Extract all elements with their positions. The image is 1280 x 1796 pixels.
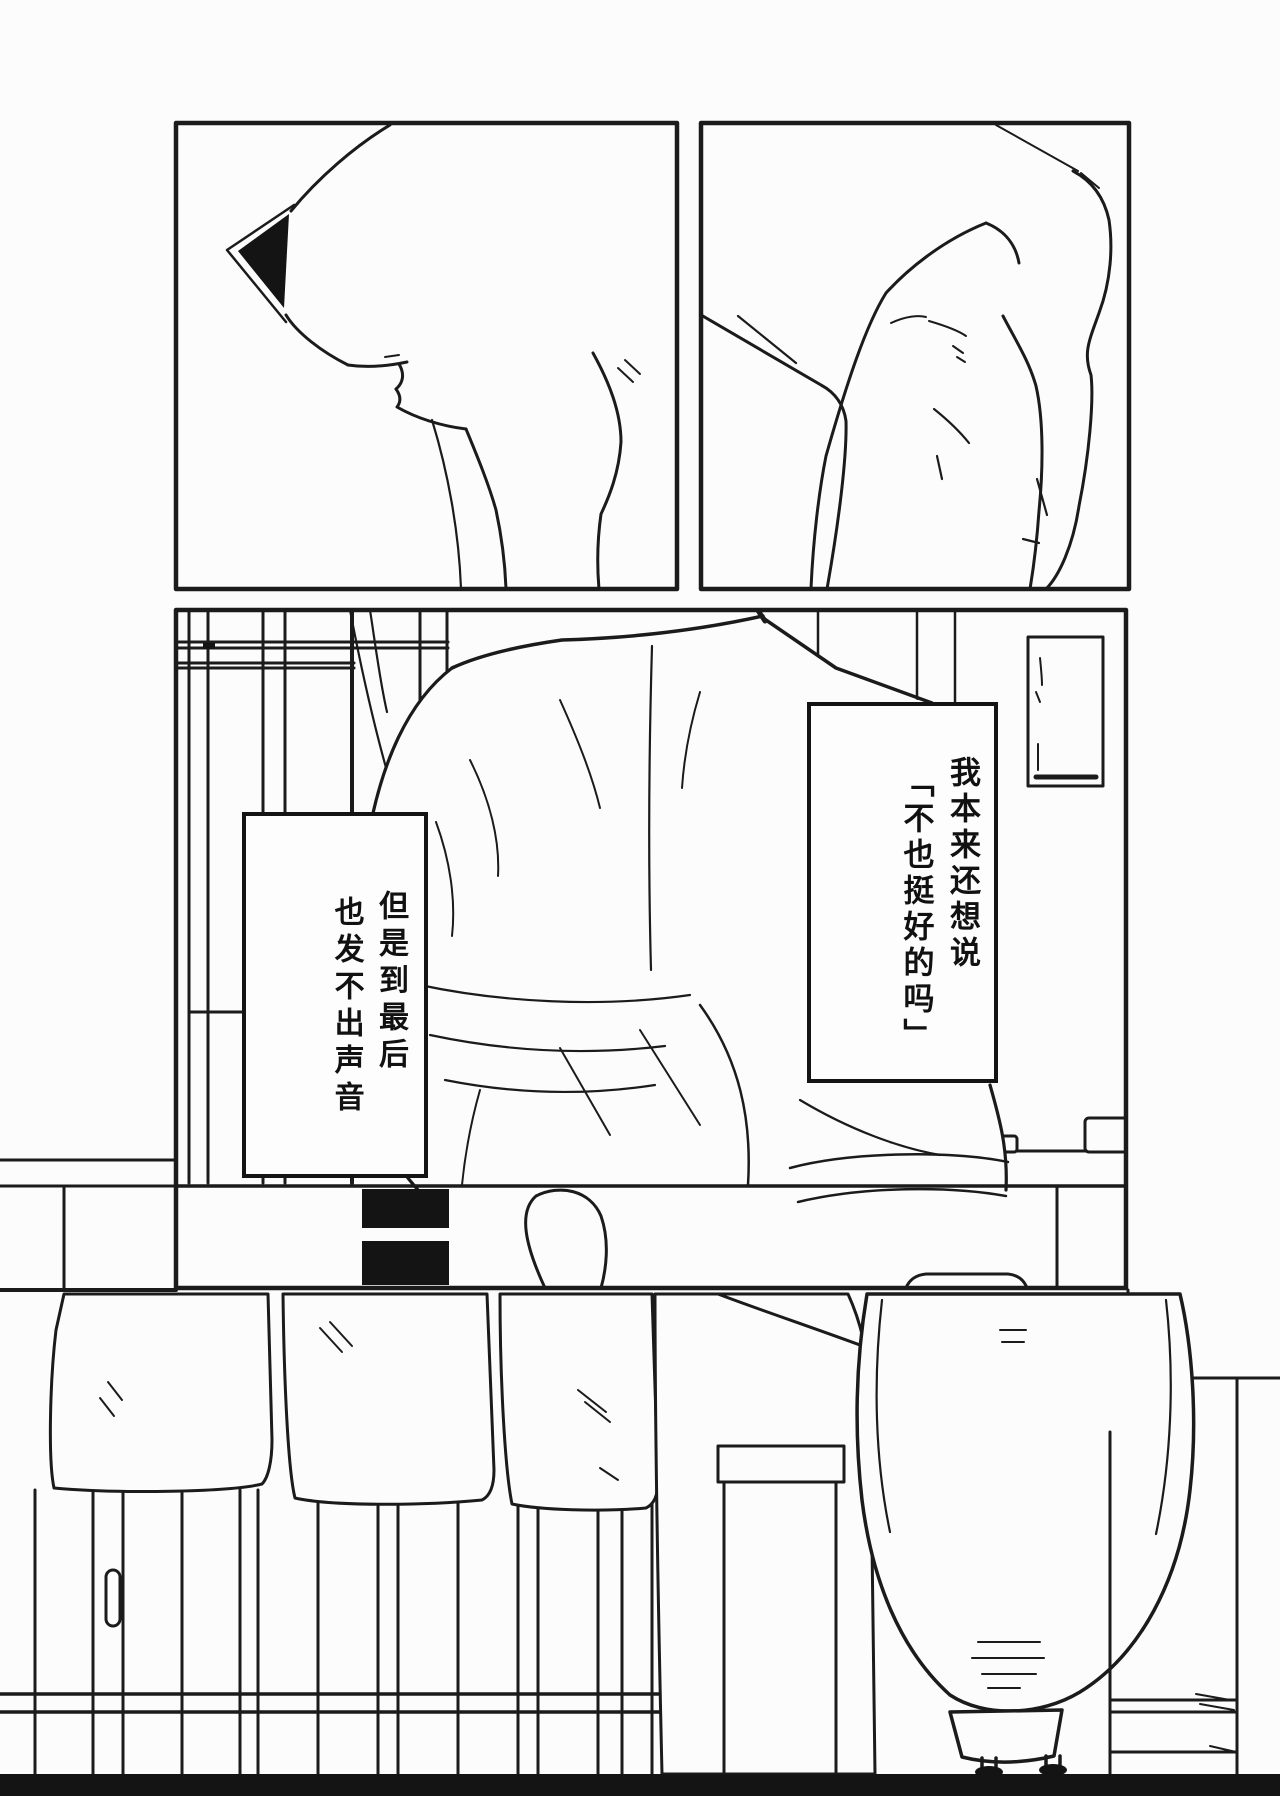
finger-edge <box>1046 171 1111 589</box>
floor-vase <box>857 1294 1194 1778</box>
speech-box-right: 我本来还想说 「不也挺好的吗」 <box>807 702 998 1083</box>
door-handle <box>106 1570 120 1626</box>
panel-hand-border <box>701 123 1129 589</box>
speech-box-left: 但是到最后 也发不出声音 <box>242 812 428 1178</box>
shoulder-line <box>593 353 621 589</box>
garment-drape <box>655 1294 875 1774</box>
stool-rail <box>718 1446 844 1482</box>
ink-stroke <box>957 357 965 362</box>
bottom-scene <box>0 1160 1280 1778</box>
cloth-middle <box>283 1294 494 1504</box>
panel-chin-border <box>176 123 677 589</box>
ink-stroke <box>385 355 399 357</box>
front-table <box>176 1186 1126 1288</box>
panel-hand-content <box>701 125 1111 589</box>
ink-stroke <box>625 360 640 374</box>
tucked-foot <box>526 1190 607 1288</box>
side-table-left-edge <box>0 1160 176 1290</box>
thumb-right-edge <box>1003 316 1042 589</box>
ink-stroke <box>937 456 942 479</box>
cloth-right <box>500 1294 658 1510</box>
ink-stroke <box>203 643 215 649</box>
ink-stroke <box>953 346 963 353</box>
ink-stroke <box>618 368 633 382</box>
thumb-tip <box>986 223 1019 263</box>
cloth-left <box>50 1294 272 1491</box>
dark-drawer <box>362 1189 449 1228</box>
jaw-line <box>291 125 390 211</box>
vase-stand-collar <box>950 1710 1062 1762</box>
chin-line <box>396 389 466 429</box>
page-artwork <box>0 0 1280 1796</box>
manga-page: 我本来还想说 「不也挺好的吗」 但是到最后 也发不出声音 <box>0 0 1280 1796</box>
neck-line <box>466 429 506 589</box>
seated-garment-and-stool <box>655 1294 875 1774</box>
ink-stroke <box>996 125 1078 171</box>
vase-body <box>857 1294 1194 1711</box>
speech-column: 我本来还想说 <box>945 756 978 1067</box>
ink-stroke <box>370 610 387 712</box>
ink-stroke <box>1200 1704 1234 1710</box>
ink-stroke <box>798 1189 1006 1202</box>
panel-chin-content <box>227 125 640 589</box>
speech-column: 「不也挺好的吗」 <box>898 766 931 1067</box>
wrist-edge <box>701 315 846 589</box>
ink-stroke <box>1081 173 1099 188</box>
mouth-corner <box>396 364 403 389</box>
cheek-line <box>286 315 348 365</box>
floor-black-band <box>0 1774 1280 1796</box>
hanging-cloths <box>50 1294 658 1510</box>
ink-stroke <box>934 409 969 443</box>
ink-stroke <box>738 316 796 363</box>
ink-stroke <box>891 316 926 323</box>
ink-stroke <box>432 420 461 589</box>
speech-column: 但是到最后 <box>374 890 406 1164</box>
hanging-scroll <box>1028 637 1103 786</box>
speech-column: 也发不出声音 <box>329 896 361 1164</box>
dark-drawer <box>362 1241 449 1285</box>
ink-stroke <box>929 321 966 336</box>
